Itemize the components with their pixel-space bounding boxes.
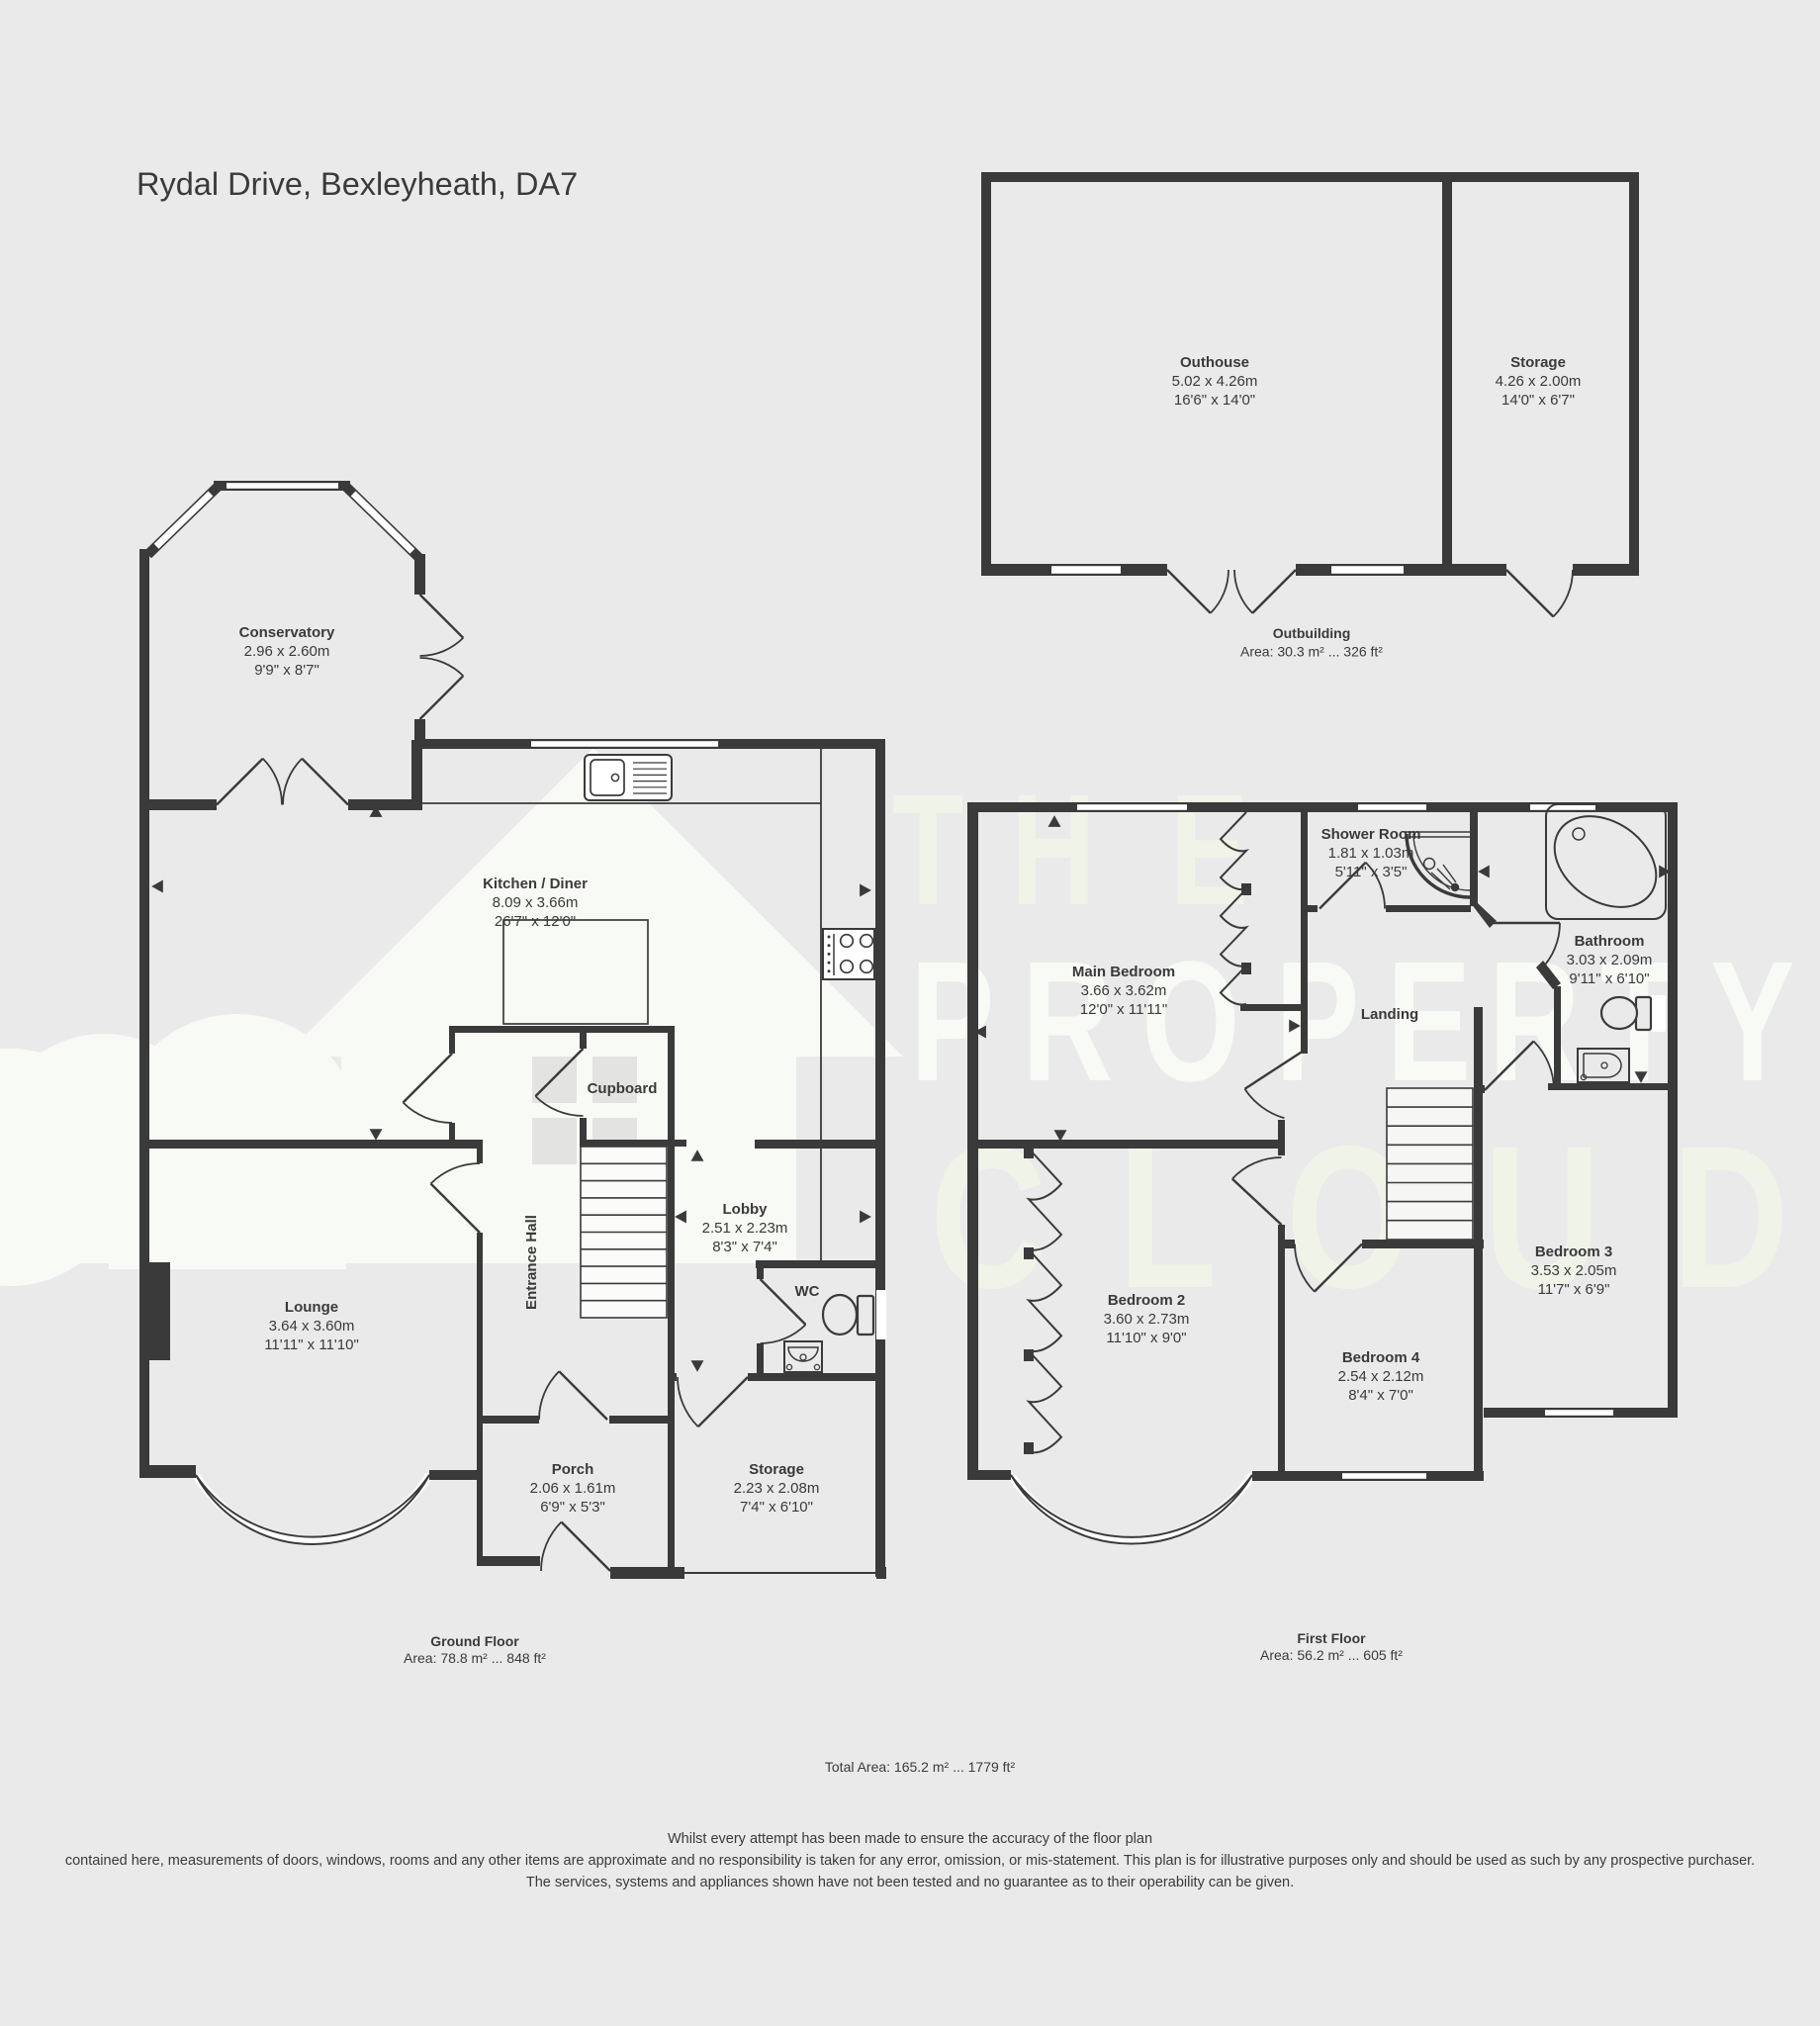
svg-text:6'9" x 5'3": 6'9" x 5'3" [540,1499,605,1516]
svg-text:contained here, measurements o: contained here, measurements of doors, w… [65,1853,1755,1869]
svg-text:Y: Y [1710,926,1794,1117]
svg-text:8'3" x 7'4": 8'3" x 7'4" [712,1239,777,1255]
svg-text:7'4" x 6'10": 7'4" x 6'10" [740,1499,813,1516]
svg-text:14'0" x 6'7": 14'0" x 6'7" [1501,392,1575,409]
svg-text:Kitchen / Diner: Kitchen / Diner [483,875,588,892]
svg-text:O: O [1141,926,1240,1117]
svg-text:Outhouse: Outhouse [1180,354,1249,371]
svg-text:Cupboard: Cupboard [588,1080,658,1097]
svg-text:Bathroom: Bathroom [1575,933,1645,950]
svg-text:D: D [1672,1105,1788,1332]
svg-text:2.23 x 2.08m: 2.23 x 2.08m [734,1480,820,1497]
svg-text:1.81 x 1.03m: 1.81 x 1.03m [1328,845,1414,862]
svg-text:Entrance Hall: Entrance Hall [523,1215,540,1310]
svg-text:2.96 x 2.60m: 2.96 x 2.60m [244,643,330,660]
svg-text:Area: 78.8 m² ... 848 ft²: Area: 78.8 m² ... 848 ft² [404,1650,546,1666]
svg-text:3.60 x 2.73m: 3.60 x 2.73m [1104,1311,1190,1328]
svg-text:T: T [892,762,963,938]
svg-text:2.54 x 2.12m: 2.54 x 2.12m [1338,1368,1424,1385]
svg-text:Lobby: Lobby [723,1201,769,1218]
svg-text:Conservatory: Conservatory [239,624,335,641]
svg-text:3.66 x 3.62m: 3.66 x 3.62m [1081,982,1167,999]
svg-text:Landing: Landing [1361,1006,1418,1023]
svg-text:5.02 x 4.26m: 5.02 x 4.26m [1172,373,1258,390]
svg-text:Main Bedroom: Main Bedroom [1072,964,1175,980]
svg-text:Storage: Storage [749,1461,804,1478]
svg-text:Whilst every attempt has been: Whilst every attempt has been made to en… [668,1831,1152,1847]
svg-text:11'7" x 6'9": 11'7" x 6'9" [1538,1281,1610,1298]
svg-text:3.64 x 3.60m: 3.64 x 3.60m [269,1318,355,1335]
svg-text:Bedroom 3: Bedroom 3 [1535,1243,1612,1260]
svg-text:26'7" x 12'0": 26'7" x 12'0" [495,913,576,930]
svg-text:2.06 x 1.61m: 2.06 x 1.61m [530,1480,616,1497]
svg-text:Area: 30.3 m² ... 326 ft²: Area: 30.3 m² ... 326 ft² [1240,644,1383,660]
svg-text:9'9" x 8'7": 9'9" x 8'7" [254,662,319,679]
svg-text:2.51 x 2.23m: 2.51 x 2.23m [702,1220,788,1237]
svg-text:Area: 56.2 m² ... 605 ft²: Area: 56.2 m² ... 605 ft² [1260,1647,1403,1663]
svg-text:Total Area: 165.2 m² ... 1779: Total Area: 165.2 m² ... 1779 ft² [825,1759,1016,1775]
svg-text:H: H [1011,762,1096,938]
svg-text:3.53 x 2.05m: 3.53 x 2.05m [1531,1262,1617,1279]
svg-text:11'11" x 11'10": 11'11" x 11'10" [264,1336,359,1353]
svg-text:P: P [1275,926,1359,1117]
svg-text:Storage: Storage [1510,354,1566,371]
svg-text:12'0" x 11'11": 12'0" x 11'11" [1080,1001,1167,1018]
svg-text:P: P [910,926,994,1117]
svg-text:WC: WC [795,1283,820,1300]
svg-text:Bedroom 4: Bedroom 4 [1342,1349,1420,1366]
svg-text:C: C [930,1105,1046,1332]
svg-text:8'4" x 7'0": 8'4" x 7'0" [1348,1387,1413,1404]
svg-text:The services, systems and appl: The services, systems and appliances sho… [526,1875,1294,1890]
svg-text:Bedroom 2: Bedroom 2 [1108,1292,1185,1309]
svg-text:4.26 x 2.00m: 4.26 x 2.00m [1496,373,1582,390]
svg-text:Porch: Porch [552,1461,594,1478]
svg-text:Outbuilding: Outbuilding [1273,625,1351,641]
svg-text:5'11" x 3'5": 5'11" x 3'5" [1335,864,1408,880]
svg-text:3.03 x 2.09m: 3.03 x 2.09m [1567,952,1653,968]
svg-text:Ground Floor: Ground Floor [430,1633,519,1649]
svg-text:Lounge: Lounge [285,1299,338,1316]
svg-text:R: R [1022,926,1113,1117]
svg-text:8.09 x 3.66m: 8.09 x 3.66m [493,894,579,911]
svg-text:Rydal Drive, Bexleyheath, DA7: Rydal Drive, Bexleyheath, DA7 [136,166,578,202]
svg-text:11'10" x 9'0": 11'10" x 9'0" [1106,1330,1186,1346]
svg-text:9'11" x 6'10": 9'11" x 6'10" [1569,970,1649,987]
svg-text:First Floor: First Floor [1297,1630,1366,1646]
svg-text:16'6" x 14'0": 16'6" x 14'0" [1174,392,1255,409]
svg-text:Shower Room: Shower Room [1321,826,1421,843]
